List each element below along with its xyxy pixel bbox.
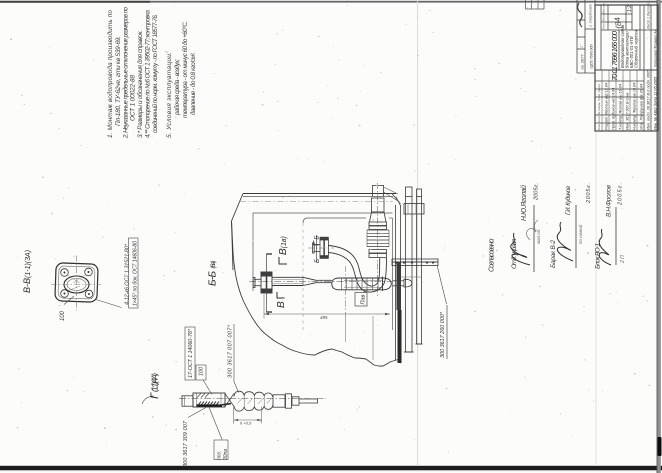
- svg-text:Б: Б: [315, 259, 321, 263]
- svg-text:Сборочный чертеж: Сборочный чертеж: [634, 28, 639, 68]
- svg-text:Г.И. Кудинов: Г.И. Кудинов: [566, 186, 572, 215]
- svg-text:1:2: 1:2: [627, 5, 633, 12]
- svg-text:2. Неуказанные предельные откл: 2. Неуказанные предельные отклонения раз…: [123, 6, 130, 139]
- svg-text:В: В: [276, 301, 287, 308]
- svg-text:300 3617 260 000*: 300 3617 260 000*: [440, 311, 446, 358]
- svg-text:поз.: поз.: [217, 451, 223, 460]
- svg-text:по новый: по новый: [577, 224, 583, 244]
- svg-text:3.* Размеры и обозначения для: 3.* Размеры и обозначения для справок.: [136, 30, 144, 138]
- svg-text:мал.об.: мал.об.: [536, 228, 541, 244]
- svg-text:17-ОСТ 1 14060-78*: 17-ОСТ 1 14060-78*: [188, 328, 194, 378]
- svg-text:495: 495: [320, 315, 328, 320]
- svg-text:6 +0,5: 6 +0,5: [240, 421, 252, 426]
- svg-text:Инв. № 4382 дата 12.05.2005: Инв. № 4382 дата 12.05.2005: [654, 76, 658, 130]
- svg-text:Н.Ю.Яголай: Н.Ю.Яголай: [520, 185, 528, 221]
- svg-text:температура - от минус 60 до +: температура - от минус 60 до +60°C.: [182, 21, 189, 118]
- svg-text:ОСТ 1 00022-88: ОСТ 1 00022-88: [130, 75, 137, 121]
- svg-text:2005г.: 2005г.: [586, 183, 592, 204]
- svg-text:Утв. Патрушев фж 20.04: Утв. Патрушев фж 20.04: [640, 84, 644, 130]
- svg-text:100: 100: [199, 366, 205, 376]
- svg-text:1×45° по бок. ОСТ 14606-80: 1×45° по бок. ОСТ 14606-80: [133, 241, 139, 306]
- svg-text:30пв: 30пв: [223, 449, 229, 460]
- svg-text:давление - до 0,8 кгс/см².: давление - до 0,8 кгс/см².: [190, 52, 197, 115]
- svg-text:7Д05.7696.000: 7Д05.7696.000: [590, 44, 594, 69]
- svg-text:70 01 7696 166 000: 70 01 7696 166 000: [610, 30, 619, 81]
- svg-text:2 П: 2 П: [620, 255, 626, 264]
- svg-text:В.Н.Фролов: В.Н.Фролов: [606, 184, 613, 217]
- svg-text:Изм. 3617 007 В-2 кж: Изм. 3617 007 В-2 кж: [626, 92, 630, 130]
- svg-text:рабочая среда - воздух;: рабочая среда - воздух;: [174, 59, 181, 116]
- svg-text:Н.контр. Фролов шв 18.04: Н.контр. Фролов шв 18.04: [633, 83, 637, 130]
- svg-text:Г: Г: [149, 392, 161, 399]
- svg-text:1: 1: [580, 46, 584, 48]
- svg-text:Лист 1 Листов 1: Лист 1 Листов 1: [647, 0, 651, 30]
- svg-text:Пл-180, ТУ-62че, гти кв 539-69: Пл-180, ТУ-62че, гти кв 539-69.: [115, 36, 122, 126]
- svg-text:Согласовано:: Согласовано:: [489, 238, 496, 272]
- svg-text:(6а): (6а): [210, 261, 217, 269]
- svg-text:300 3617 309 007: 300 3617 309 007: [183, 420, 189, 467]
- svg-text:Масшт.: Масшт.: [602, 2, 606, 13]
- svg-text:г. Свердловск: г. Свердловск: [589, 4, 593, 27]
- svg-text:Разраб. Иволгин жф 12.04: Разраб. Иволгин жф 12.04: [605, 83, 609, 130]
- svg-text:Копировал Формат А4: Копировал Формат А4: [654, 29, 658, 67]
- svg-text:Лит.: Лит.: [602, 23, 606, 31]
- svg-text:5. Условия эксплуатации:: 5. Условия эксплуатации:: [166, 52, 173, 138]
- svg-text:2005г.: 2005г.: [534, 183, 540, 201]
- svg-text:св. 2877: св. 2877: [580, 54, 585, 70]
- svg-text:(1:1)(4А): (1:1)(4А): [151, 373, 160, 392]
- svg-text:Пров. Кудинов нel 14.04: Пров. Кудинов нel 14.04: [612, 88, 616, 130]
- svg-text:2005г.: 2005г.: [618, 183, 624, 206]
- svg-text:Изм Лист № докум. Подп. Да: Изм Лист № докум. Подп. Дата: [597, 84, 601, 130]
- svg-text:Б: Б: [315, 236, 321, 240]
- svg-text:соединений по норм. хомуту - п: соединений по норм. хомуту - по ГОСТ 185…: [152, 14, 159, 133]
- svg-text:300 3617 007 007*: 300 3617 007 007*: [228, 324, 234, 378]
- svg-text:100: 100: [60, 310, 66, 321]
- svg-text:Б-Б: Б-Б: [208, 271, 219, 286]
- svg-text:(84: (84: [613, 16, 624, 29]
- svg-text:Т.контр. Яголай вш 16.04: Т.контр. Яголай вш 16.04: [619, 84, 623, 130]
- svg-text:4-12-к6 ОСТ 1 31521-80*: 4-12-к6 ОСТ 1 31521-80*: [125, 243, 131, 305]
- svg-text:Барак В-2: Барак В-2: [550, 240, 557, 268]
- svg-text:4.** Стопорение по №6 ОСТ 1 39: 4.** Стопорение по №6 ОСТ 1 39502-77; ко…: [145, 9, 152, 138]
- svg-text:Изм. подл. 28.3617 В-2 подп.: Изм. подл. 28.3617 В-2 подп. 2005: [647, 69, 651, 130]
- svg-text:1. Монтаж водопровода производ: 1. Монтаж водопровода производить по: [106, 10, 114, 138]
- svg-text:Пав: Пав: [361, 294, 367, 304]
